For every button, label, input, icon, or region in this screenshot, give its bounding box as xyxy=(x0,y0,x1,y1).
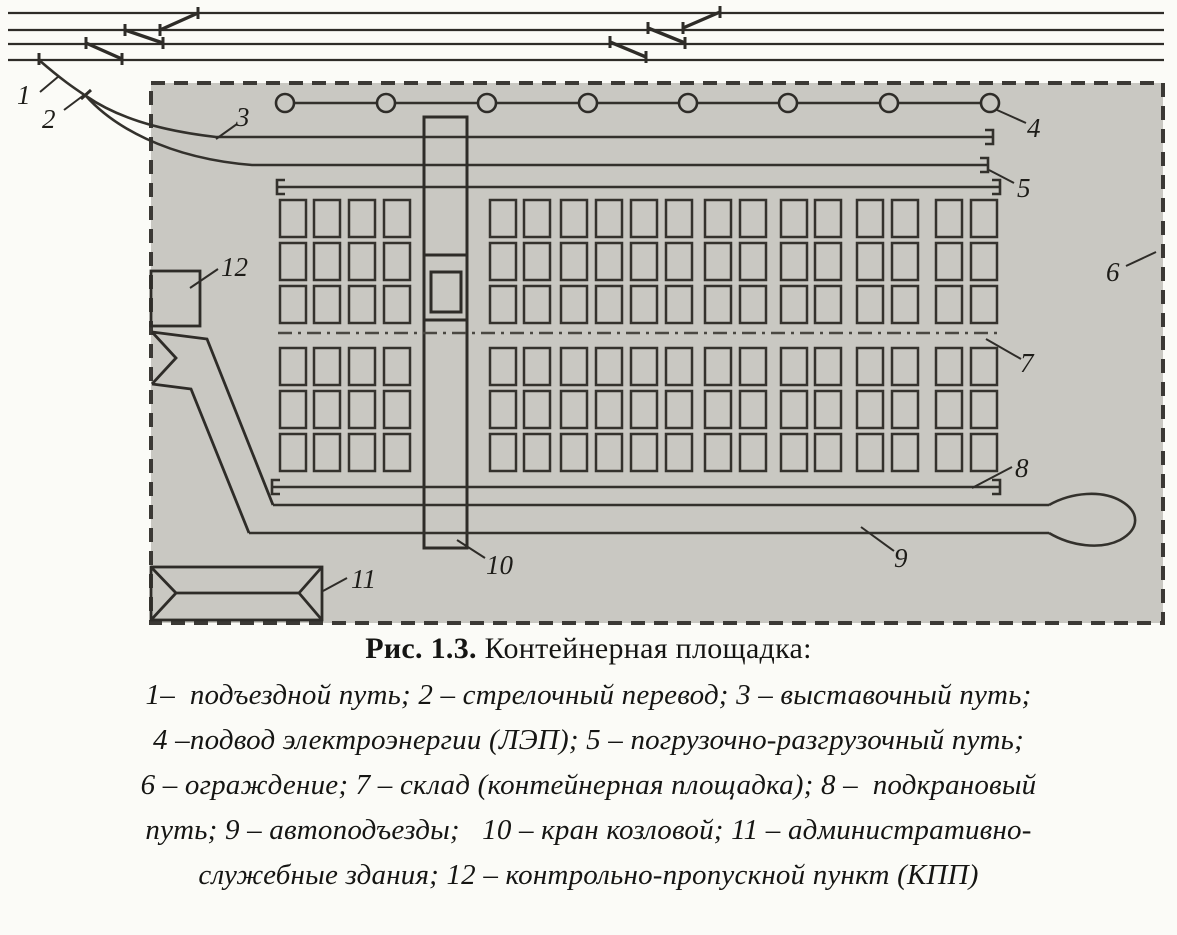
label-3: 3 xyxy=(235,102,250,132)
figure-caption: Рис. 1.3. Контейнерная площадка: 1– подъ… xyxy=(0,632,1177,898)
container-yard-diagram: 1 2 3 4 5 6 7 8 9 10 11 12 xyxy=(0,0,1177,632)
legend-line-4: путь; 9 – автоподъезды; 10 – кран козлов… xyxy=(0,808,1177,853)
power-pole xyxy=(679,94,697,112)
label-6: 6 xyxy=(1106,257,1120,287)
figure-number: Рис. 1.3. xyxy=(365,632,477,665)
power-pole xyxy=(880,94,898,112)
label-9: 9 xyxy=(894,543,908,573)
legend-line-5: служебные здания; 12 – контрольно-пропус… xyxy=(0,853,1177,898)
scanned-book-figure: 1 2 3 4 5 6 7 8 9 10 11 12 Рис. 1.3. Кон… xyxy=(0,0,1177,935)
power-pole xyxy=(276,94,294,112)
label-5: 5 xyxy=(1017,173,1031,203)
label-4: 4 xyxy=(1027,113,1041,143)
legend-line-1: 1– подъездной путь; 2 – стрелочный перев… xyxy=(0,673,1177,718)
power-pole xyxy=(377,94,395,112)
label-10: 10 xyxy=(486,550,514,580)
power-pole xyxy=(981,94,999,112)
label-11: 11 xyxy=(351,564,376,594)
figure-name: Контейнерная площадка: xyxy=(477,632,812,665)
label-8: 8 xyxy=(1015,453,1029,483)
label-1: 1 xyxy=(17,80,31,110)
legend-line-2: 4 –подвод электроэнергии (ЛЭП); 5 – погр… xyxy=(0,718,1177,763)
figure-title: Рис. 1.3. Контейнерная площадка: xyxy=(0,632,1177,666)
label-2: 2 xyxy=(42,104,56,134)
label-12: 12 xyxy=(221,252,248,282)
figure-legend: 1– подъездной путь; 2 – стрелочный перев… xyxy=(0,673,1177,898)
power-pole xyxy=(779,94,797,112)
label-7: 7 xyxy=(1020,348,1035,378)
power-pole xyxy=(579,94,597,112)
legend-line-3: 6 – ограждение; 7 – склад (контейнерная … xyxy=(0,763,1177,808)
power-pole xyxy=(478,94,496,112)
